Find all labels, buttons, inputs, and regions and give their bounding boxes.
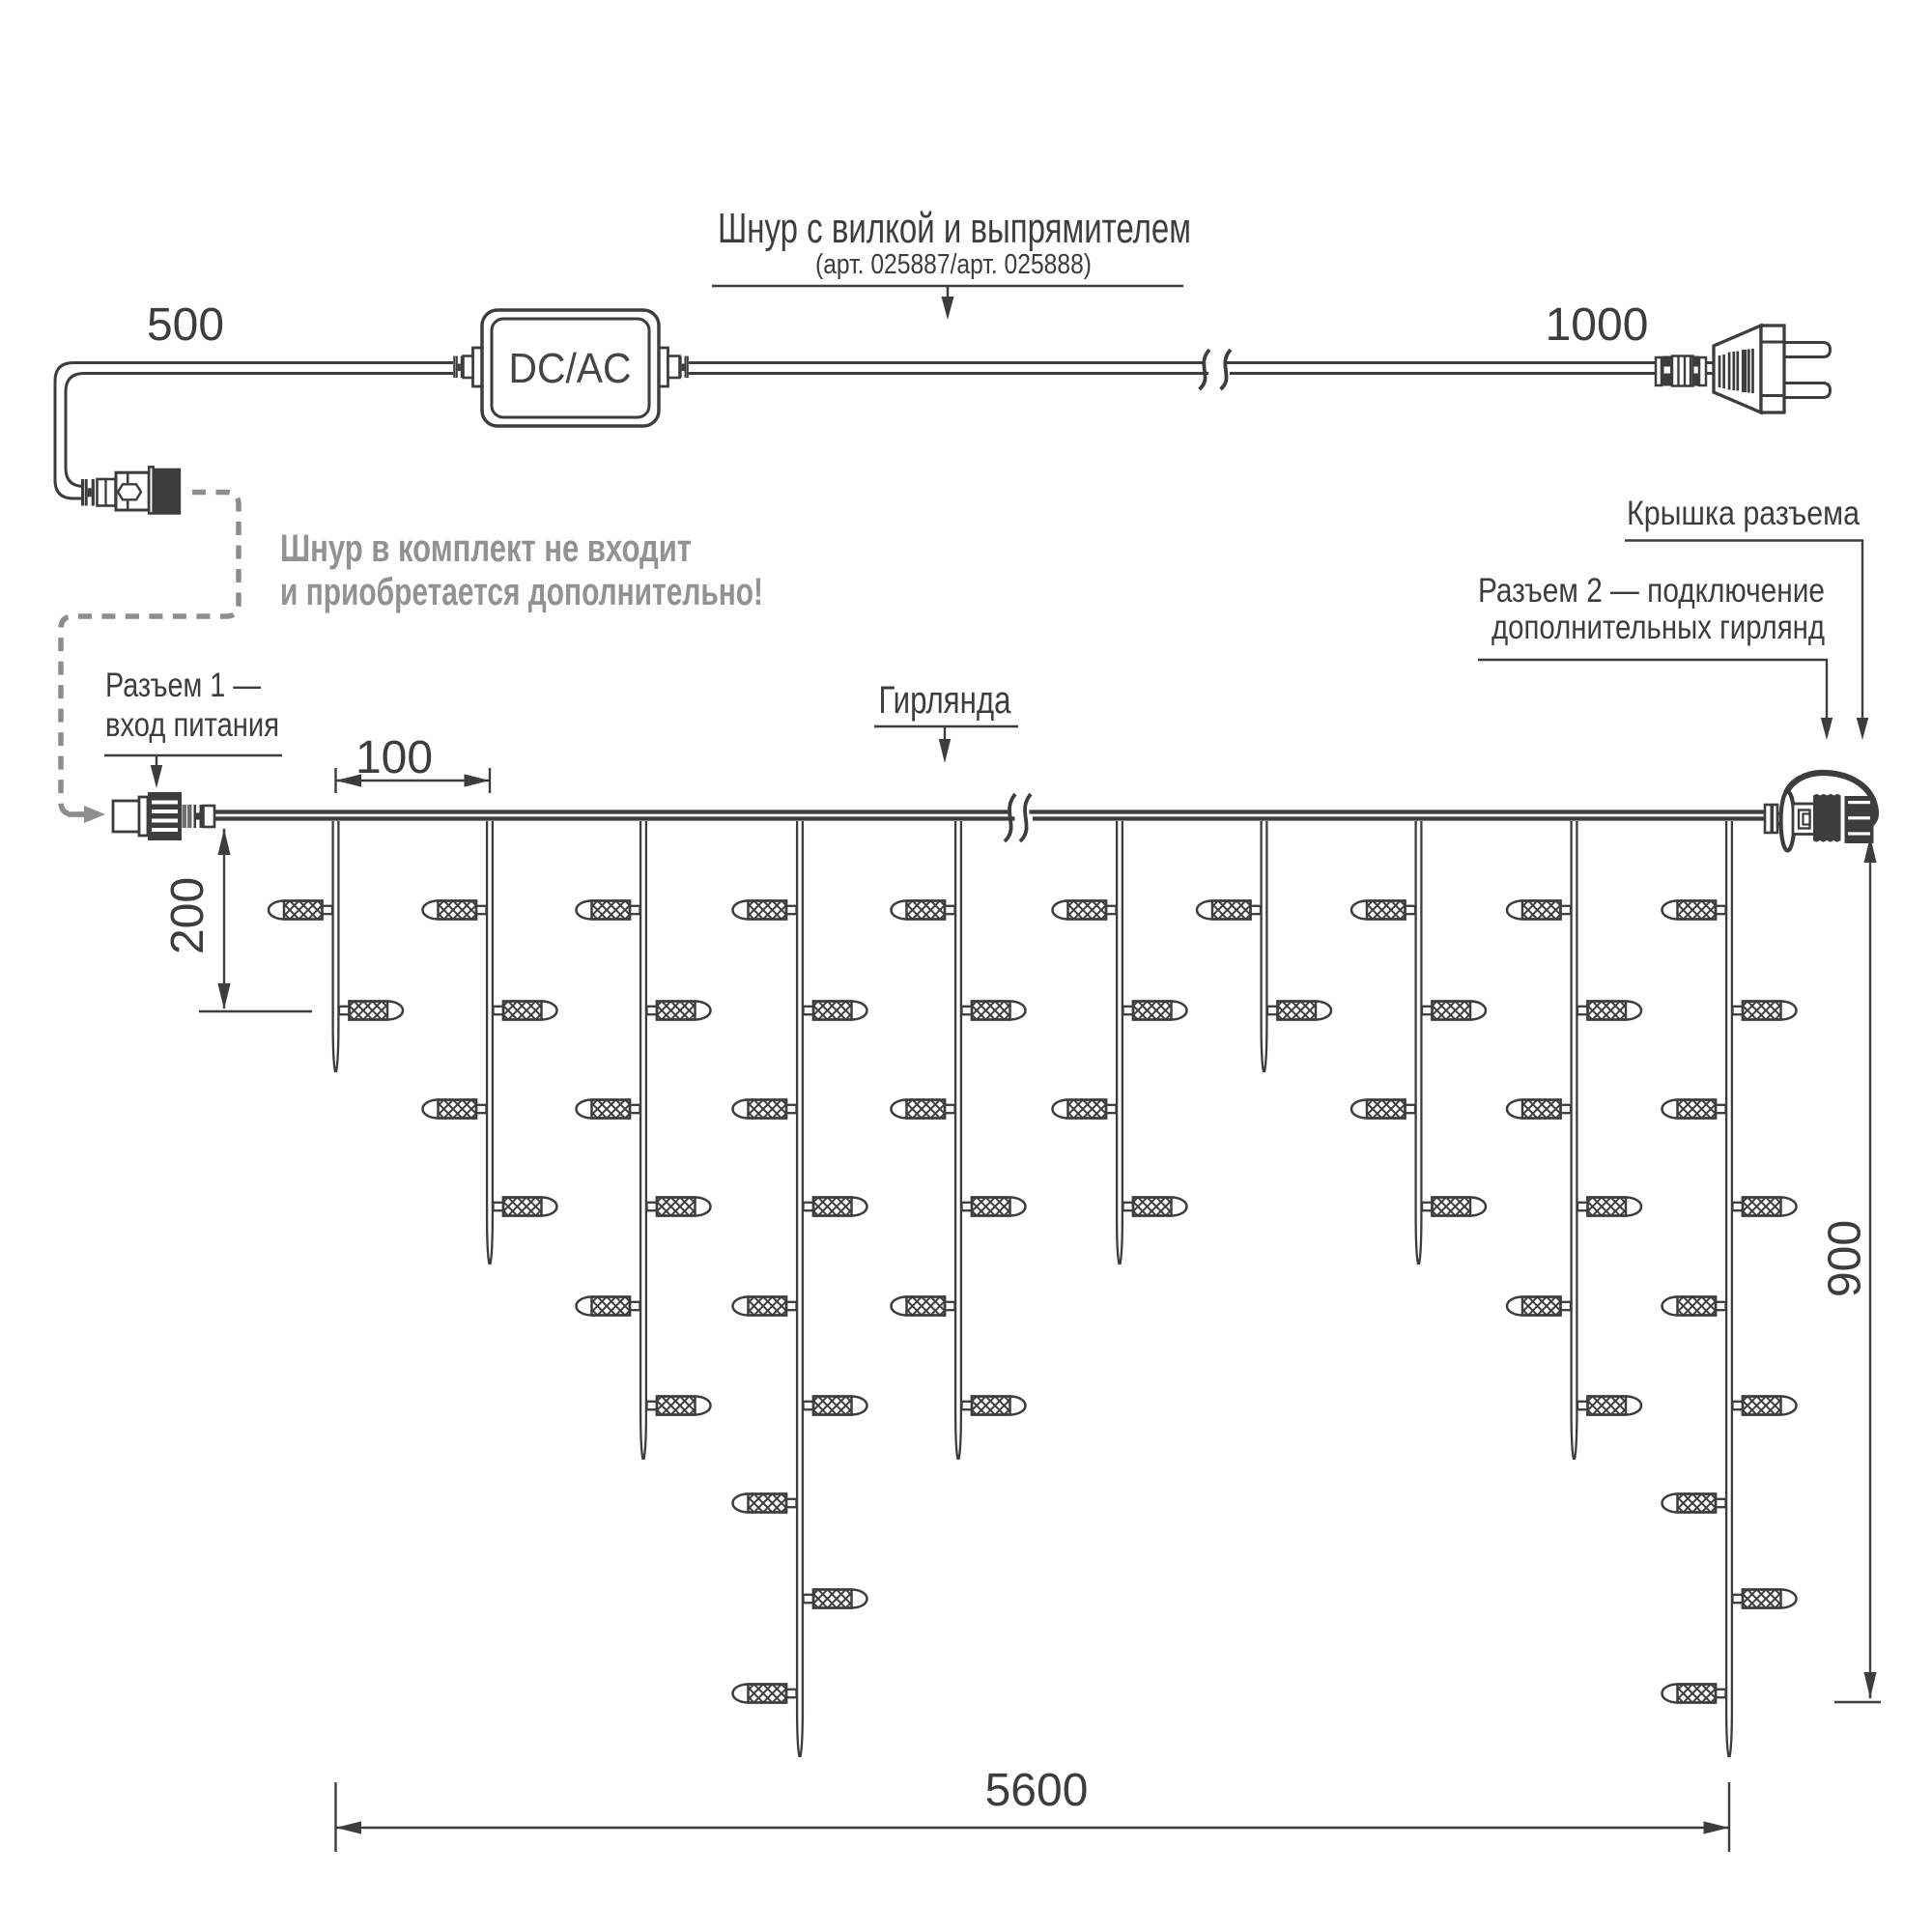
svg-text:(арт. 025887/арт. 025888): (арт. 025887/арт. 025888)	[815, 249, 1092, 280]
svg-text:900: 900	[1820, 1220, 1871, 1297]
svg-text:Разъем 1 —: Разъем 1 —	[105, 667, 261, 704]
svg-text:и приобретается дополнительно!: и приобретается дополнительно!	[280, 571, 763, 613]
svg-text:Разъем 2 — подключение: Разъем 2 — подключение	[1478, 572, 1825, 610]
svg-text:дополнительных гирлянд: дополнительных гирлянд	[1492, 609, 1825, 646]
svg-text:Шнур с вилкой и выпрямителем: Шнур с вилкой и выпрямителем	[718, 205, 1191, 252]
svg-text:DC/AC: DC/AC	[509, 345, 632, 392]
svg-text:Крышка разъема: Крышка разъема	[1627, 495, 1860, 532]
svg-text:Шнур в комплект не входит: Шнур в комплект не входит	[280, 527, 692, 570]
svg-text:вход питания: вход питания	[105, 706, 279, 744]
svg-text:5600: 5600	[985, 1765, 1089, 1816]
svg-text:1000: 1000	[1546, 299, 1649, 351]
svg-text:100: 100	[355, 732, 433, 783]
svg-text:200: 200	[162, 877, 213, 954]
svg-text:Гирлянда: Гирлянда	[879, 679, 1012, 722]
svg-text:500: 500	[147, 299, 224, 351]
